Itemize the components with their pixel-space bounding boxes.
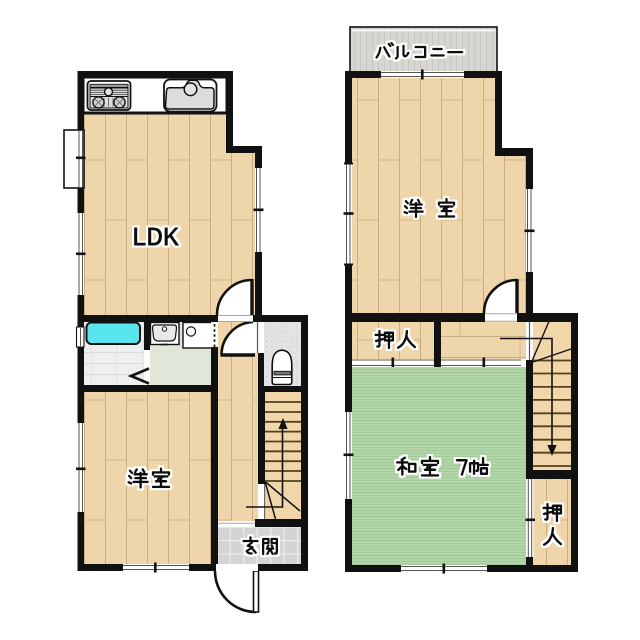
svg-text:LDK: LDK [133,222,180,252]
